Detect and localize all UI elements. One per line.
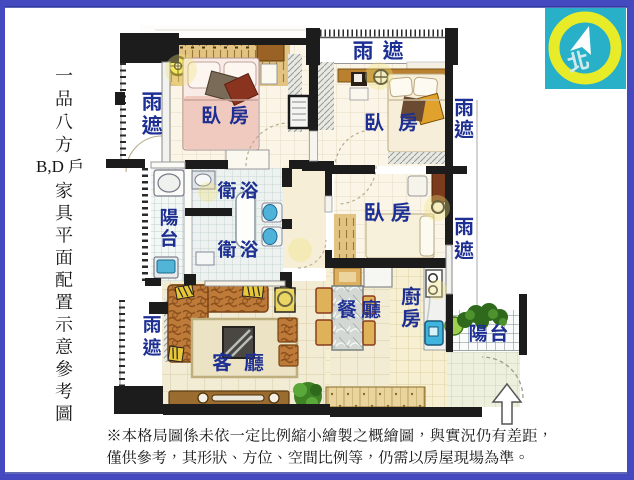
svg-text:B,D: B,D <box>36 157 64 176</box>
